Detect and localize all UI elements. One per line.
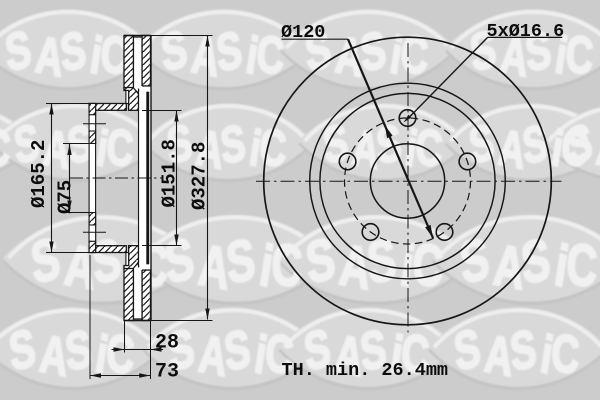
svg-text:Ø75: Ø75 xyxy=(55,180,77,214)
svg-text:Ø151.8: Ø151.8 xyxy=(159,139,181,207)
svg-text:SASiC: SASiC xyxy=(165,317,296,388)
svg-text:TH. min. 26.4mm: TH. min. 26.4mm xyxy=(282,360,449,381)
svg-text:SASiC: SASiC xyxy=(158,19,286,88)
svg-text:Ø165.2: Ø165.2 xyxy=(28,140,50,208)
svg-text:SASiC: SASiC xyxy=(2,19,130,88)
svg-text:SASiC: SASiC xyxy=(302,225,445,302)
svg-text:73: 73 xyxy=(155,361,179,384)
svg-text:5xØ16.6: 5xØ16.6 xyxy=(487,21,565,42)
svg-text:SASiC: SASiC xyxy=(456,225,599,302)
svg-text:28: 28 xyxy=(155,332,179,355)
svg-text:Ø120: Ø120 xyxy=(281,22,325,43)
svg-text:SASiC: SASiC xyxy=(451,317,582,388)
svg-text:Ø327.8: Ø327.8 xyxy=(189,142,211,210)
svg-text:SASiC: SASiC xyxy=(164,114,289,181)
svg-text:SASiC: SASiC xyxy=(161,225,304,302)
svg-text:SASiC: SASiC xyxy=(6,317,137,388)
